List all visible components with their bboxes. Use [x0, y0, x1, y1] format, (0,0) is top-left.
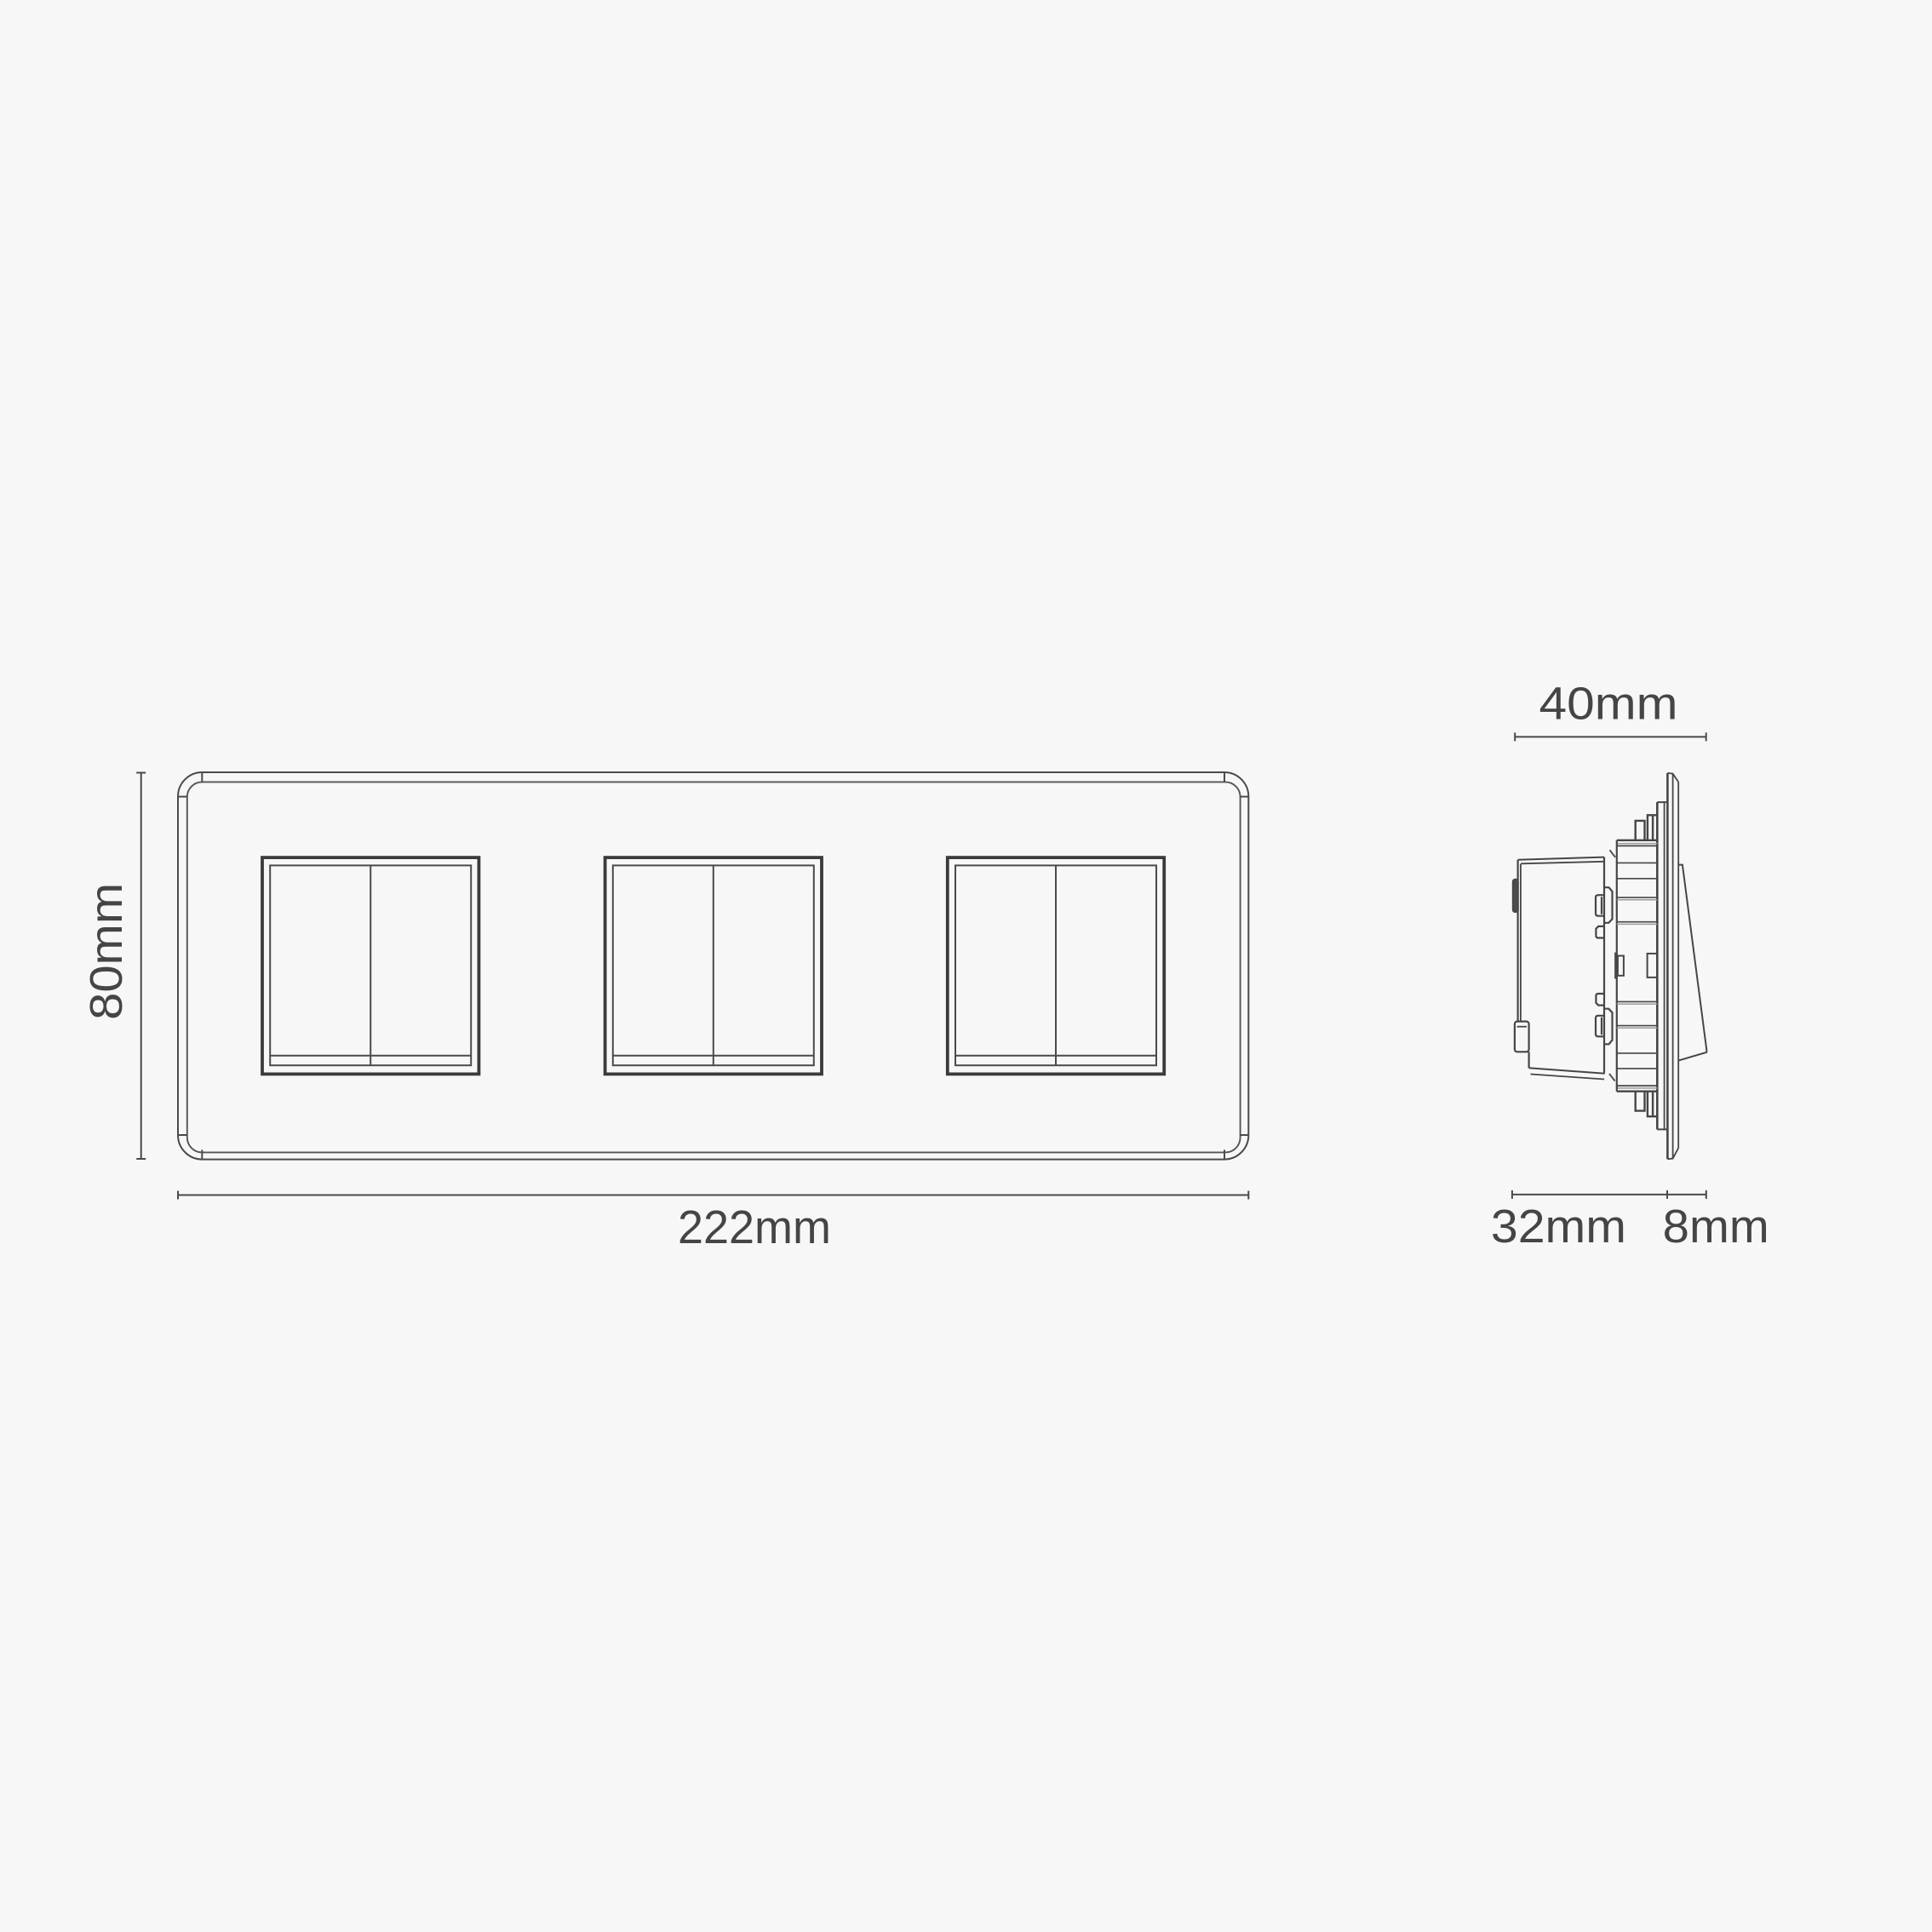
svg-text:222mm: 222mm [678, 1201, 831, 1253]
svg-text:32mm: 32mm [1491, 1200, 1626, 1253]
svg-text:8mm: 8mm [1663, 1200, 1769, 1253]
svg-text:80mm: 80mm [81, 883, 132, 1020]
svg-text:40mm: 40mm [1539, 678, 1678, 729]
